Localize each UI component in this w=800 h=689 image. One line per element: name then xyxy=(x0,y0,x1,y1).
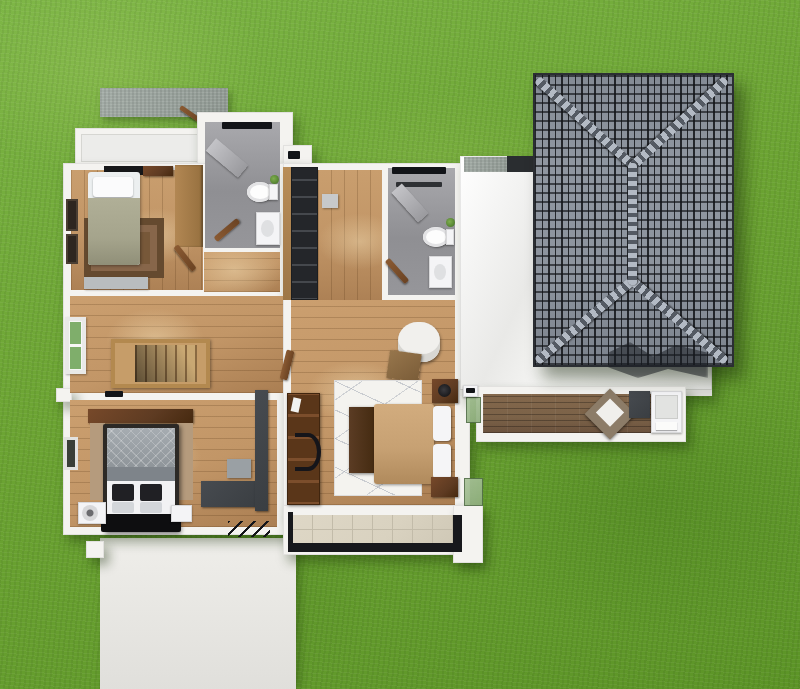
vent-grille xyxy=(105,391,123,397)
day-bed xyxy=(651,391,682,433)
bolster-pillow xyxy=(433,406,451,441)
day-bed-cushion xyxy=(655,395,678,419)
bed-double xyxy=(103,424,179,532)
duvet xyxy=(88,198,140,265)
sink-basin xyxy=(261,220,274,237)
wall-unit-slot xyxy=(466,388,475,393)
tv xyxy=(227,459,251,478)
landing-floor xyxy=(204,252,280,292)
headboard-bench xyxy=(101,514,181,532)
lamp xyxy=(438,384,451,397)
lounge-cushion xyxy=(596,398,624,426)
ottoman xyxy=(386,350,422,382)
desk-unit xyxy=(287,393,320,505)
toilet-tank xyxy=(446,229,454,245)
roof-dark-strip xyxy=(507,156,534,172)
pillow xyxy=(112,502,134,513)
tv-console xyxy=(201,481,259,507)
toilet-tank xyxy=(269,184,278,200)
plant xyxy=(446,218,455,227)
staircase xyxy=(111,339,210,388)
window-frame xyxy=(64,437,78,470)
vent-grille xyxy=(288,151,300,159)
pillow-dark xyxy=(112,484,134,501)
floor-plan-scene xyxy=(0,0,800,689)
bolster-pillow xyxy=(433,444,451,479)
bed-double-tan xyxy=(374,404,434,484)
bed-single xyxy=(88,172,140,265)
pillow-dark xyxy=(140,484,162,501)
window-pane xyxy=(70,347,81,369)
pillow xyxy=(93,177,133,197)
dresser xyxy=(88,409,193,423)
corridor-floor xyxy=(318,170,382,300)
window-frame xyxy=(66,234,78,264)
closet-side-panel xyxy=(283,167,291,300)
window-pane xyxy=(67,440,75,467)
driveway xyxy=(100,538,296,689)
nightstand xyxy=(431,477,458,497)
hall-window xyxy=(65,317,86,374)
window-frame xyxy=(66,199,78,231)
nightstand xyxy=(171,505,192,522)
balcony-rail-left xyxy=(288,512,293,552)
roof-ridge-tr xyxy=(628,76,729,171)
balcony-rail-right xyxy=(453,515,462,549)
roof-ridge-center xyxy=(628,163,637,285)
nightstand xyxy=(432,379,458,403)
planter xyxy=(629,391,650,418)
wall-unit xyxy=(463,385,478,397)
wardrobe xyxy=(175,165,203,247)
speaker xyxy=(82,505,98,521)
nightstand xyxy=(78,502,106,524)
drain-grate xyxy=(228,521,270,537)
wall-panel xyxy=(177,423,193,500)
balcony-rail-bottom xyxy=(288,543,462,552)
paper xyxy=(291,397,302,412)
glass-canopy xyxy=(466,397,481,423)
foot-bench xyxy=(349,407,377,473)
bench xyxy=(84,277,148,289)
day-bed-pillow xyxy=(656,422,677,430)
balcony-tiles xyxy=(292,515,455,545)
pillow xyxy=(140,502,162,513)
duvet-band xyxy=(107,467,175,481)
sink xyxy=(429,256,452,288)
hamper xyxy=(322,194,338,208)
desk-chair xyxy=(295,433,321,471)
roof-ledge xyxy=(75,128,205,166)
sink xyxy=(256,212,280,245)
roof-ridge-tl xyxy=(534,76,638,171)
stair-treads xyxy=(135,345,197,382)
vent-grille xyxy=(392,167,446,174)
entry-step xyxy=(86,541,104,558)
plant xyxy=(270,175,279,184)
glass-canopy xyxy=(464,478,483,506)
window-pane xyxy=(70,322,81,344)
closet-unit xyxy=(291,167,318,300)
vent-grille xyxy=(222,122,272,129)
divider-wall xyxy=(255,390,268,511)
shelf xyxy=(143,166,173,176)
tiled-roof xyxy=(533,73,734,367)
sink-basin xyxy=(434,264,446,280)
roof-concrete-strip xyxy=(464,157,507,172)
roof-ledge-inner xyxy=(81,134,199,162)
duvet-patterned xyxy=(107,428,175,467)
